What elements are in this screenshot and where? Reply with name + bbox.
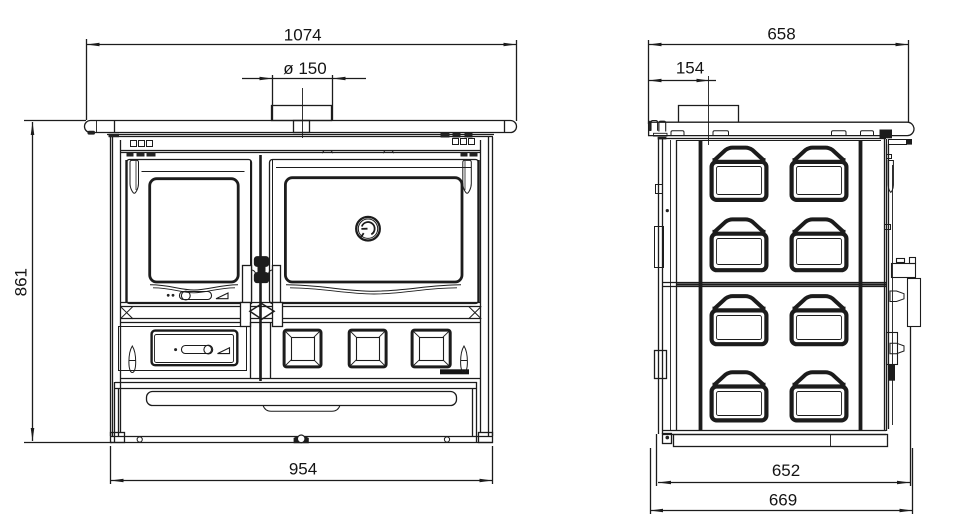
svg-text:669: 669 <box>769 491 797 510</box>
svg-text:652: 652 <box>772 461 800 480</box>
svg-text:861: 861 <box>11 268 30 296</box>
svg-text:954: 954 <box>289 459 317 478</box>
svg-text:ø 150: ø 150 <box>283 59 326 78</box>
svg-text:658: 658 <box>767 25 795 44</box>
svg-text:154: 154 <box>676 59 704 78</box>
svg-text:1074: 1074 <box>284 25 322 44</box>
